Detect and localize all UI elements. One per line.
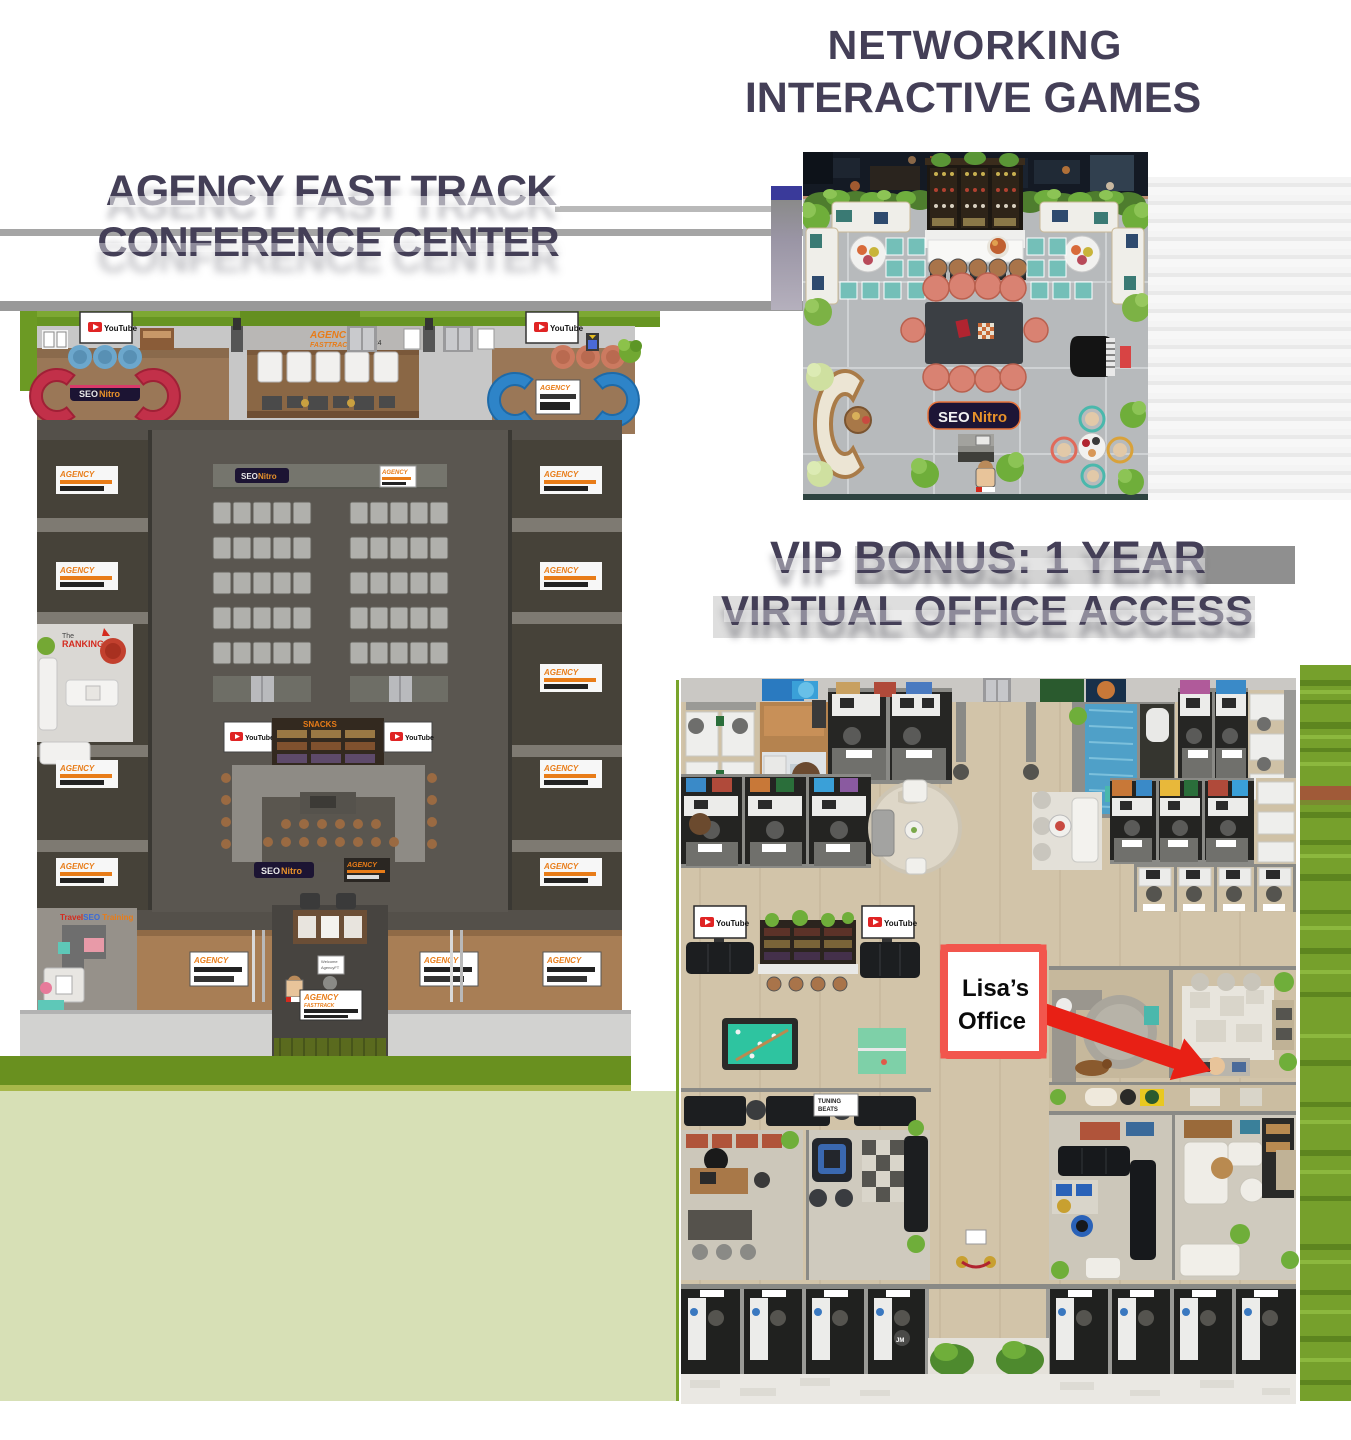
svg-text:Nitro: Nitro [99, 389, 120, 399]
svg-text:SEO: SEO [938, 409, 970, 426]
svg-text:Office: Office [958, 1008, 1026, 1035]
svg-text:AGENCY: AGENCY [346, 862, 378, 869]
svg-text:AGENCY: AGENCY [59, 470, 95, 479]
svg-text:AGENCY: AGENCY [539, 385, 571, 392]
svg-text:Lisa’s: Lisa’s [962, 975, 1029, 1002]
svg-text:AGENCY: AGENCY [543, 764, 579, 773]
svg-text:AGENCY: AGENCY [543, 566, 579, 575]
svg-text:AGENCY: AGENCY [381, 470, 409, 476]
svg-text:Nitro: Nitro [281, 866, 302, 876]
svg-text:AGENCY: AGENCY [193, 956, 229, 965]
svg-text:YouTube: YouTube [550, 324, 584, 333]
svg-text:AGENCY: AGENCY [59, 862, 95, 871]
svg-text:Nitro: Nitro [972, 409, 1007, 426]
svg-text:YouTube: YouTube [405, 735, 434, 742]
svg-text:Welcome: Welcome [321, 959, 338, 964]
svg-text:YouTube: YouTube [245, 735, 274, 742]
svg-text:AGENCY: AGENCY [543, 862, 579, 871]
svg-text:AGENCY: AGENCY [543, 668, 579, 677]
svg-text:SNACKS: SNACKS [303, 720, 337, 729]
svg-text:AGENCY: AGENCY [543, 470, 579, 479]
svg-text:AGENCY: AGENCY [303, 993, 339, 1002]
svg-text:AGENCY: AGENCY [59, 566, 95, 575]
svg-text:YouTube: YouTube [104, 324, 138, 333]
svg-text:AGENCY: AGENCY [59, 764, 95, 773]
svg-text:AgencyFT: AgencyFT [321, 965, 340, 970]
svg-text:JM: JM [896, 1338, 904, 1344]
svg-text:AGENCY: AGENCY [546, 956, 582, 965]
svg-text:SEO: SEO [261, 866, 280, 876]
svg-text:SEO: SEO [79, 389, 98, 399]
svg-text:Nitro: Nitro [258, 472, 277, 481]
svg-text:FASTTRACK: FASTTRACK [304, 1003, 335, 1009]
svg-text:TUNING: TUNING [818, 1099, 841, 1105]
svg-text:AGENCY: AGENCY [423, 956, 459, 965]
svg-text:FASTTRACK: FASTTRACK [310, 342, 353, 349]
svg-text:TravelSEO Training: TravelSEO Training [60, 913, 133, 922]
svg-text:SEO: SEO [241, 472, 258, 481]
svg-text:RANKING: RANKING [62, 639, 104, 649]
svg-text:BEATS: BEATS [818, 1107, 838, 1113]
